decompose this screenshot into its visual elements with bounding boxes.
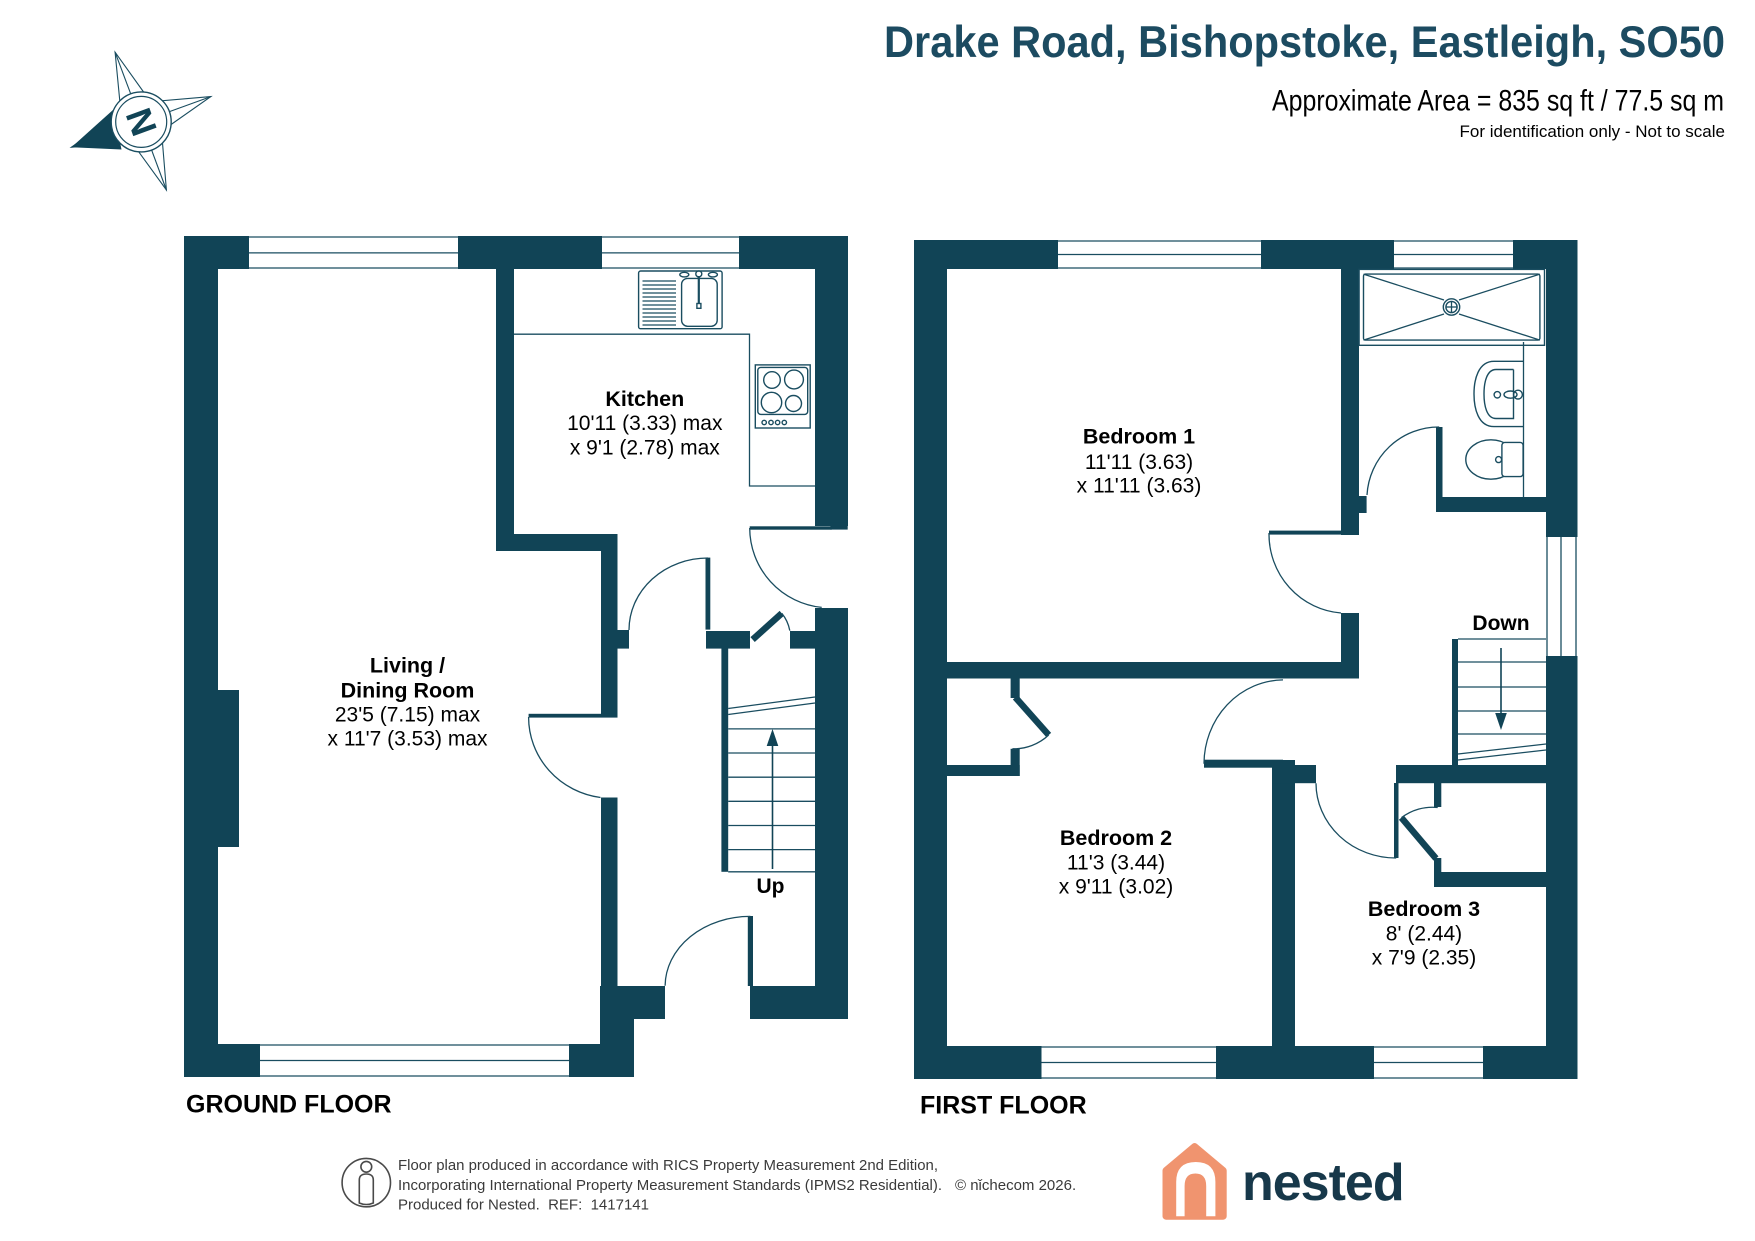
svg-text:GROUND FLOOR: GROUND FLOOR [186,1091,392,1119]
svg-text:x 9'11 (3.02): x 9'11 (3.02) [1059,876,1174,899]
svg-text:Floor plan produced in accorda: Floor plan produced in accordance with R… [398,1158,938,1174]
svg-text:11'11 (3.63): 11'11 (3.63) [1085,451,1193,474]
svg-text:10'11 (3.33) max: 10'11 (3.33) max [567,412,723,435]
svg-text:Bedroom 1: Bedroom 1 [1083,425,1195,449]
svg-text:nested: nested [1242,1154,1404,1212]
svg-text:23'5 (7.15) max: 23'5 (7.15) max [335,704,481,727]
svg-text:11'3 (3.44): 11'3 (3.44) [1067,852,1165,875]
svg-text:x 7'9 (2.35): x 7'9 (2.35) [1372,947,1476,970]
svg-text:Drake Road, Bishopstoke, Eastl: Drake Road, Bishopstoke, Eastleigh, SO50 [884,18,1725,67]
svg-text:8' (2.44): 8' (2.44) [1386,923,1462,946]
svg-text:Down: Down [1472,612,1529,635]
svg-text:x 11'11 (3.63): x 11'11 (3.63) [1077,474,1202,497]
svg-text:Living /: Living / [370,654,445,678]
svg-text:Bedroom 3: Bedroom 3 [1368,897,1480,921]
svg-text:© nǐchecom 2026.: © nǐchecom 2026. [955,1177,1076,1194]
svg-text:For identification only - Not: For identification only - Not to scale [1459,122,1725,141]
svg-text:Dining Room: Dining Room [341,679,475,703]
svg-text:Bedroom 2: Bedroom 2 [1060,826,1172,850]
svg-text:Kitchen: Kitchen [605,387,684,411]
svg-text:Approximate Area = 835 sq ft /: Approximate Area = 835 sq ft / 77.5 sq m [1272,85,1724,118]
svg-text:Produced for Nested. REF: 14: Produced for Nested. REF: 1417141 [398,1198,649,1214]
svg-text:x 11'7 (3.53) max: x 11'7 (3.53) max [327,727,488,750]
svg-text:FIRST FLOOR: FIRST FLOOR [920,1092,1087,1120]
svg-text:Incorporating International Pr: Incorporating International Property Mea… [398,1178,942,1194]
svg-text:Up: Up [757,875,785,898]
svg-text:x 9'1 (2.78) max: x 9'1 (2.78) max [570,437,720,460]
